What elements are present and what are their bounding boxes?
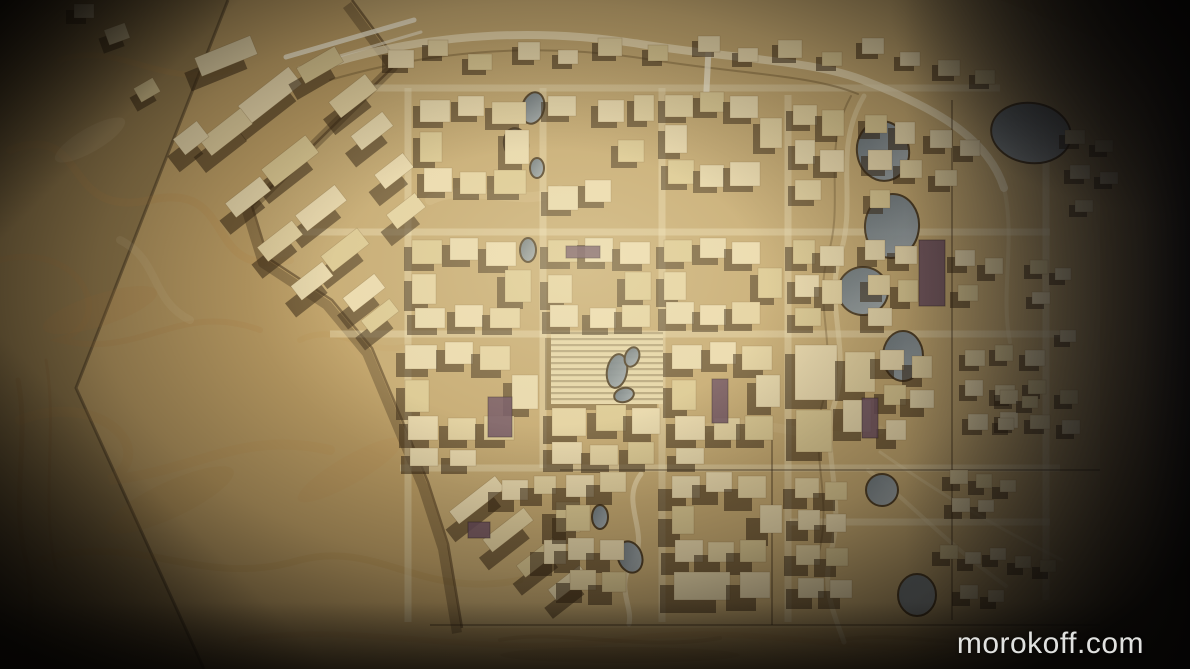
watermark: morokoff.com — [957, 627, 1144, 661]
photo-wooden-city-model: morokoff.com — [0, 0, 1190, 669]
model-scene — [0, 0, 1190, 669]
